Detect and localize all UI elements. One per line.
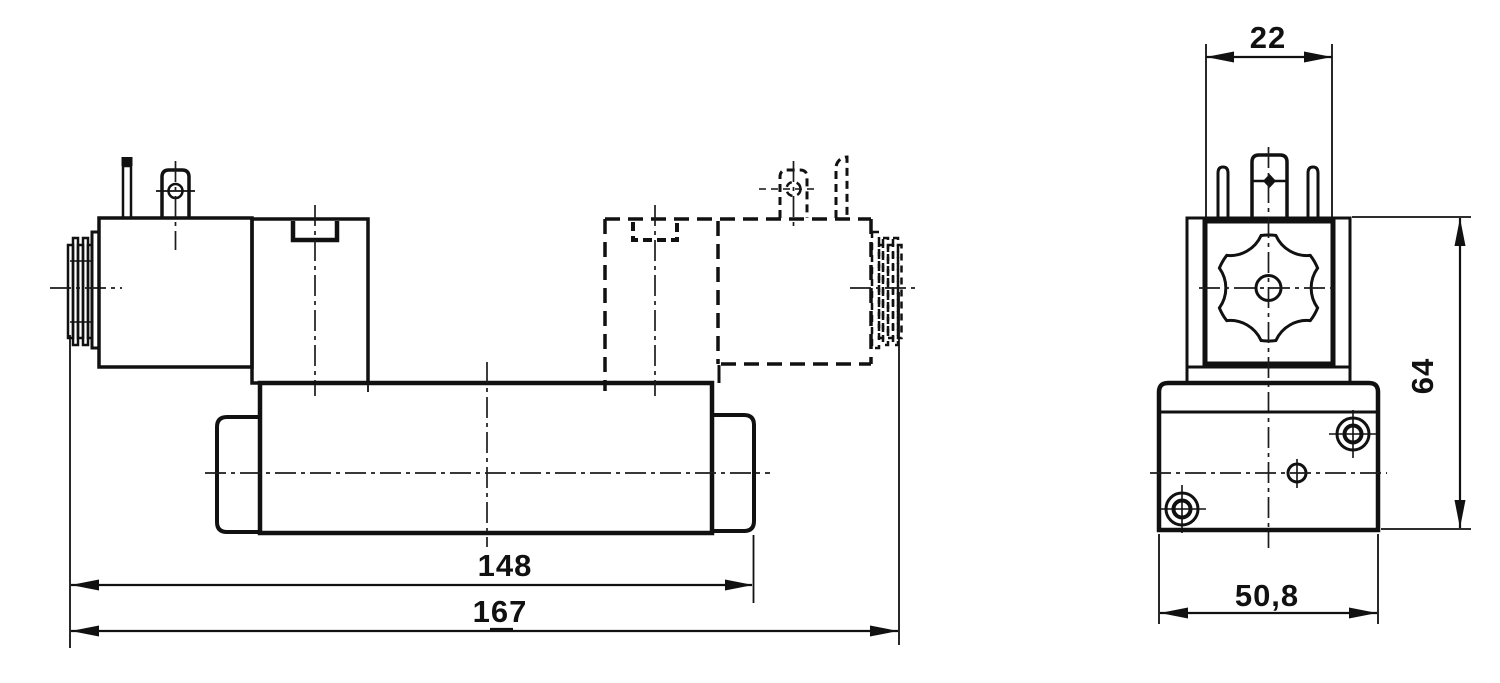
arrow-left-icon xyxy=(71,580,99,591)
pilot-section xyxy=(252,205,368,396)
second-solenoid-phantom xyxy=(605,157,917,396)
arrow-up-icon xyxy=(1455,218,1466,246)
screw-head-bottom-left xyxy=(1158,485,1206,533)
coil-front xyxy=(1187,147,1350,548)
arrow-right-icon xyxy=(1304,52,1332,63)
center-plug-dot xyxy=(1263,174,1276,188)
dimension-label-22: 22 xyxy=(1250,20,1286,55)
solenoid-valve-dimension-drawing: 148 167 22 50,8 xyxy=(0,0,1500,683)
arrow-right-icon xyxy=(870,626,898,637)
terminal-pin-left xyxy=(1218,167,1228,218)
dimension-64: 64 xyxy=(1352,217,1471,529)
arrow-right-icon xyxy=(1349,608,1377,619)
arrow-left-icon xyxy=(71,626,99,637)
dimension-label-64: 64 xyxy=(1405,358,1440,394)
dimension-label-167: 167 xyxy=(473,594,528,629)
arrow-right-icon xyxy=(725,580,753,591)
left-mounting-lug xyxy=(217,417,260,532)
dimension-label-148: 148 xyxy=(478,548,533,583)
terminal-pin-right xyxy=(1308,167,1318,218)
screw-head-top-right xyxy=(1329,410,1377,458)
pilot-housing xyxy=(252,219,368,383)
side-view xyxy=(50,157,917,547)
arrow-down-icon xyxy=(1455,500,1466,528)
terminal-pin xyxy=(123,166,131,218)
front-view xyxy=(1150,147,1387,548)
phantom-terminal-pin xyxy=(836,157,847,218)
terminal-pin-cap xyxy=(122,157,133,166)
valve-body xyxy=(205,362,770,547)
dimensions: 148 167 22 50,8 xyxy=(70,20,1471,648)
arrow-left-icon xyxy=(1160,608,1188,619)
arrow-left-icon xyxy=(1206,52,1234,63)
dimension-167: 167 xyxy=(71,292,899,645)
manual-override-ribs xyxy=(50,232,122,348)
technical-drawing-canvas: 148 167 22 50,8 xyxy=(0,0,1500,683)
dimension-label-50-8: 50,8 xyxy=(1235,578,1299,613)
body-outline xyxy=(260,383,712,533)
solenoid-coil xyxy=(99,157,252,367)
